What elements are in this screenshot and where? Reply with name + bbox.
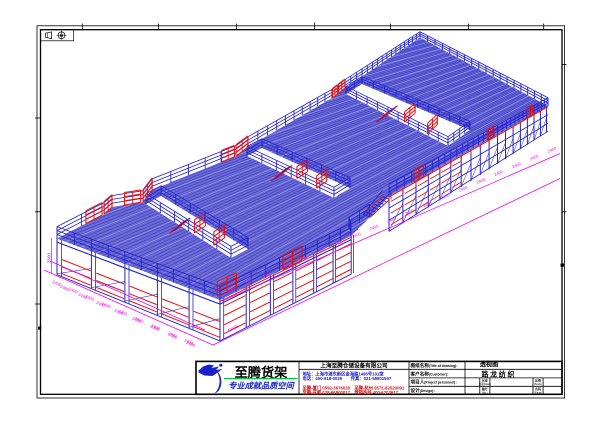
svg-text:完成: 完成 xyxy=(482,378,488,383)
svg-text:客户名称(Customer)：: 客户名称(Customer)： xyxy=(410,370,451,377)
svg-text:项目人(Project personnel)：: 项目人(Project personnel)： xyxy=(411,379,459,386)
svg-text:(No.): (No.) xyxy=(482,390,488,394)
svg-text:(Scale): (Scale) xyxy=(534,382,542,386)
svg-text:(Page): (Page) xyxy=(534,390,542,394)
svg-text:3500: 3500 xyxy=(47,252,52,263)
svg-text:日期(Date): 日期(Date) xyxy=(479,382,492,386)
svg-text:比例: 比例 xyxy=(535,378,541,383)
svg-text:至腾-成都 028-66800017 营销热线 400-62: 至腾-成都 028-66800017 营销热线 400-6203617 xyxy=(303,389,399,396)
svg-text:设计(Design)：: 设计(Design)： xyxy=(411,387,437,394)
svg-text:图纸名称(Title of drawing)：: 图纸名称(Title of drawing)： xyxy=(411,362,460,369)
svg-text:图号: 图号 xyxy=(482,386,488,391)
svg-text:路 龙 纺 织: 路 龙 纺 织 xyxy=(482,370,515,379)
svg-text:专业成就品质空间: 专业成就品质空间 xyxy=(228,381,295,391)
svg-text:至腾货架: 至腾货架 xyxy=(235,364,289,380)
svg-text:透视图: 透视图 xyxy=(480,361,499,369)
svg-text:上海至腾仓储设备有限公司: 上海至腾仓储设备有限公司 xyxy=(320,362,388,370)
svg-text:页码: 页码 xyxy=(535,386,541,391)
svg-text:电话：400-618-0026 传真：021-588015: 电话：400-618-0026 传真：021-58801507 xyxy=(303,375,392,382)
